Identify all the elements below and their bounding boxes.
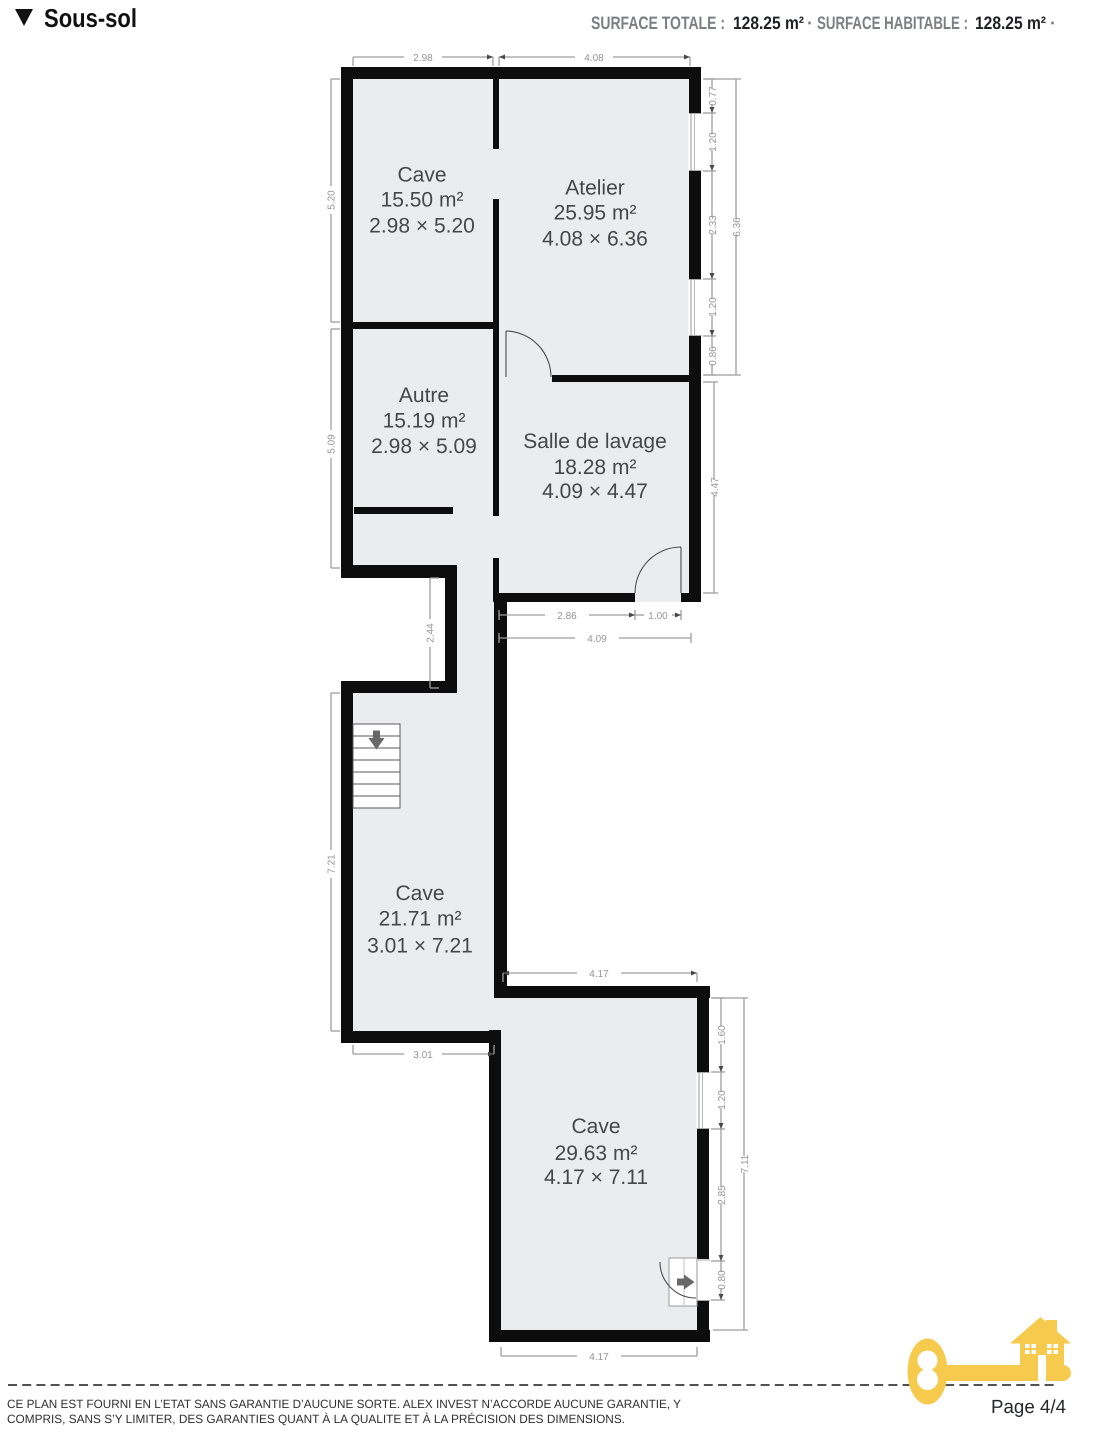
svg-text:18.28 m²: 18.28 m² [554,456,637,479]
svg-text:COMPRIS, SANS S’Y LIMITER, DES: COMPRIS, SANS S’Y LIMITER, DES GARANTIES… [7,1412,625,1426]
svg-text:7.11: 7.11 [740,1154,751,1173]
svg-text:2.98: 2.98 [413,53,433,64]
svg-text:0.80: 0.80 [717,1270,728,1290]
svg-text:6.36: 6.36 [732,217,743,237]
svg-text:4.09 × 4.47: 4.09 × 4.47 [542,480,648,503]
svg-text:7.21: 7.21 [327,854,338,874]
svg-text:29.63 m²: 29.63 m² [555,1142,638,1165]
svg-text:1.00: 1.00 [648,611,668,622]
svg-text:4.08 × 6.36: 4.08 × 6.36 [542,228,648,251]
svg-text:21.71 m²: 21.71 m² [379,908,462,931]
svg-text:Sous-sol: Sous-sol [44,3,137,33]
svg-text:128.25 m²: 128.25 m² [733,13,804,33]
svg-text:Page 4/4: Page 4/4 [991,1397,1066,1418]
svg-text:3.01: 3.01 [413,1050,433,1061]
svg-text:4.08: 4.08 [584,53,604,64]
svg-text:25.95 m²: 25.95 m² [554,202,637,225]
svg-text:15.19 m²: 15.19 m² [383,410,466,433]
svg-text:SURFACE TOTALE :: SURFACE TOTALE : [591,13,725,33]
svg-text:128.25 m²: 128.25 m² [975,13,1046,33]
svg-text:SURFACE HABITABLE :: SURFACE HABITABLE : [817,13,968,33]
svg-text:4.17: 4.17 [589,1352,609,1363]
svg-text:1.60: 1.60 [717,1025,728,1045]
svg-text:5.09: 5.09 [327,434,338,454]
svg-text:Salle de lavage: Salle de lavage [523,430,667,453]
svg-text:4.09: 4.09 [587,634,607,645]
svg-text:CE PLAN EST FOURNI EN L’ETAT S: CE PLAN EST FOURNI EN L’ETAT SANS GARANT… [7,1397,681,1411]
svg-text:Cave: Cave [571,1115,620,1138]
svg-text:Atelier: Atelier [565,177,625,200]
svg-text:4.17: 4.17 [589,969,609,980]
svg-text:2.85: 2.85 [717,1185,728,1205]
svg-text:Cave: Cave [395,882,444,905]
svg-text:1.20: 1.20 [708,132,719,152]
svg-text:Autre: Autre [399,384,449,407]
svg-text:2.44: 2.44 [426,623,437,643]
svg-text:2.98 × 5.20: 2.98 × 5.20 [369,215,475,238]
svg-text:Cave: Cave [397,164,446,187]
svg-text:·: · [807,13,813,33]
svg-text:4.17 × 7.11: 4.17 × 7.11 [544,1166,648,1189]
svg-text:0.86: 0.86 [708,346,719,366]
svg-text:2.33: 2.33 [708,215,719,235]
svg-text:1.20: 1.20 [708,297,719,317]
svg-text:2.98 × 5.09: 2.98 × 5.09 [371,435,477,458]
svg-text:1.20: 1.20 [717,1090,728,1110]
svg-text:15.50 m²: 15.50 m² [381,189,464,212]
svg-text:3.01 × 7.21: 3.01 × 7.21 [367,935,473,958]
svg-text:5.20: 5.20 [327,190,338,210]
svg-text:2.86: 2.86 [557,611,577,622]
svg-text:4.47: 4.47 [710,477,721,497]
svg-text:0.77: 0.77 [708,86,719,106]
svg-text:·: · [1050,13,1056,33]
